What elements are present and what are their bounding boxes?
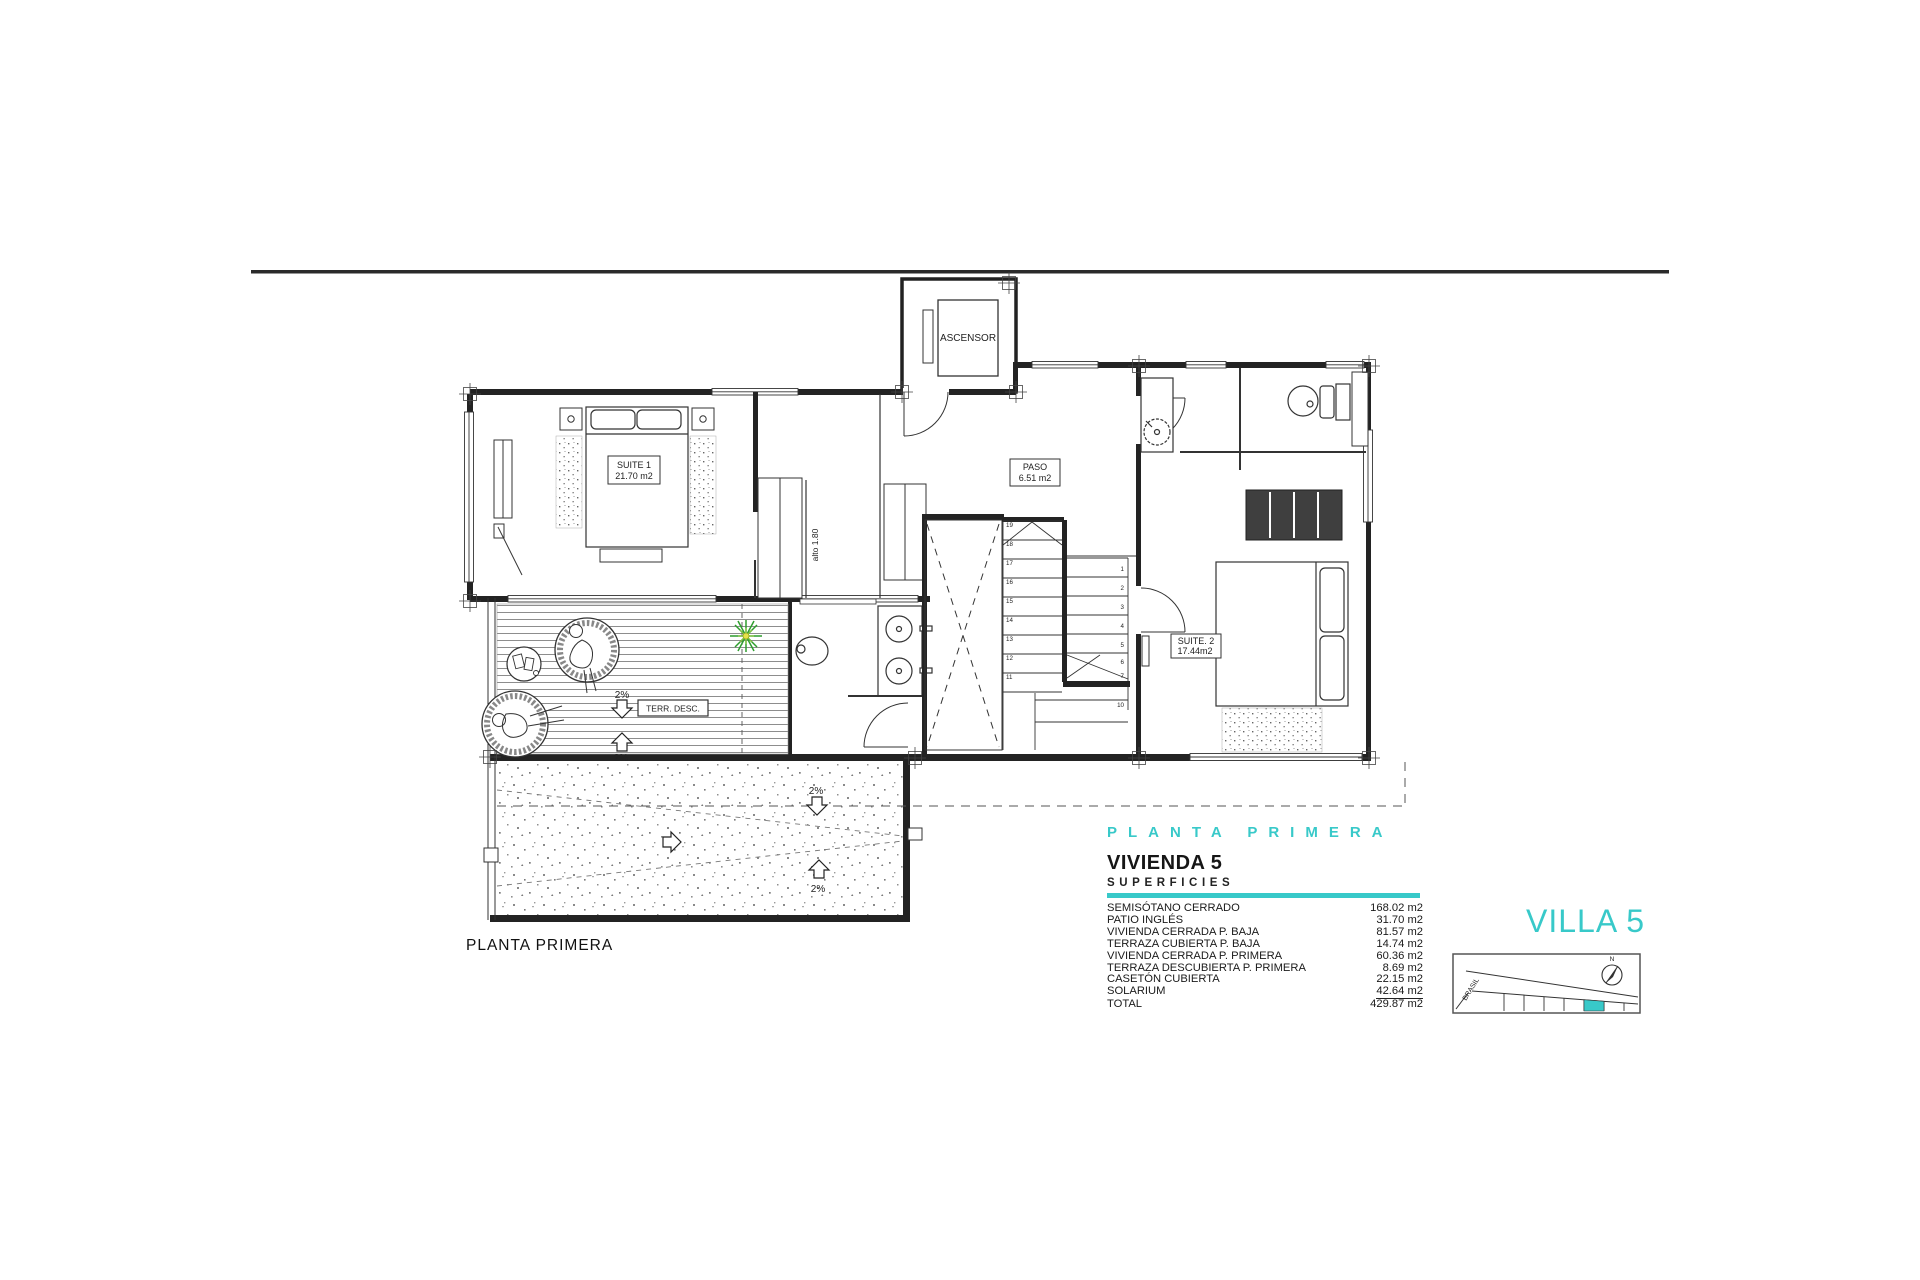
bath-cabinet bbox=[1352, 372, 1368, 446]
stair-void bbox=[922, 514, 1004, 757]
step-num: 11 bbox=[1006, 674, 1013, 681]
drain-fitting bbox=[908, 828, 922, 840]
suite1-wardrobe bbox=[494, 440, 522, 575]
north-label: N bbox=[1610, 956, 1615, 963]
step-num: 17 bbox=[1006, 560, 1013, 567]
step-num: 13 bbox=[1006, 636, 1013, 643]
slope-label: 2% bbox=[615, 690, 630, 701]
suite1-room: SUITE 1 21.70 m2 bbox=[494, 407, 716, 575]
suite2-radiator bbox=[1142, 636, 1149, 666]
alto-annotation: alto 1.80 bbox=[810, 528, 820, 561]
suite1-name: SUITE 1 bbox=[617, 460, 651, 470]
bathroom-middle bbox=[796, 599, 932, 696]
suite1-rug-left bbox=[556, 436, 582, 528]
suite2-label-box: SUITE. 2 17.44m2 bbox=[1171, 634, 1221, 658]
bathroom-right bbox=[1141, 368, 1368, 470]
suite2-bed bbox=[1216, 562, 1348, 706]
suite2-closet bbox=[1246, 490, 1342, 540]
step-num: 3 bbox=[1121, 604, 1125, 611]
wardrobe-b bbox=[884, 484, 926, 580]
table-row: VIVIENDA CERRADA P. BAJA81.57 m2 bbox=[1107, 927, 1423, 939]
step-num: 12 bbox=[1006, 655, 1013, 662]
table-row: TERRAZA CUBIERTA P. BAJA14.74 m2 bbox=[1107, 939, 1423, 951]
legend-divider-bar bbox=[1107, 893, 1420, 898]
terrace-deck: 2% 2% TERR. DESC. bbox=[482, 604, 788, 764]
step-num: 6 bbox=[1121, 659, 1125, 666]
table-row: VIVIENDA CERRADA P. PRIMERA60.36 m2 bbox=[1107, 951, 1423, 963]
table-row-total: TOTAL429.87 m2 bbox=[1107, 999, 1423, 1011]
row-label: TOTAL bbox=[1107, 999, 1142, 1011]
row-value: 429.87 m2 bbox=[1370, 999, 1423, 1011]
suite1-rug-right bbox=[690, 436, 716, 534]
step-num: 19 bbox=[1006, 522, 1013, 529]
row-label: VIVIENDA CERRADA P. BAJA bbox=[1107, 927, 1259, 939]
suite2-name: SUITE. 2 bbox=[1178, 636, 1215, 646]
sheet-border-line bbox=[251, 270, 1669, 274]
step-num: 14 bbox=[1006, 617, 1013, 624]
toilet-right bbox=[1288, 384, 1350, 420]
paso-name: PASO bbox=[1023, 462, 1047, 472]
drawing-sheet: ASCENSOR bbox=[0, 0, 1920, 1280]
terrace-label: TERR. DESC. bbox=[646, 704, 700, 714]
stairs: 19 18 17 16 15 14 13 12 11 1 2 3 4 5 6 7… bbox=[922, 514, 1136, 757]
stair-landing bbox=[1035, 693, 1128, 750]
villa-title: VILLA 5 bbox=[1526, 903, 1645, 940]
row-value: 14.74 m2 bbox=[1376, 939, 1423, 951]
row-label: VIVIENDA CERRADA P. PRIMERA bbox=[1107, 951, 1282, 963]
suite1-bench bbox=[600, 549, 662, 562]
row-value: 60.36 m2 bbox=[1376, 951, 1423, 963]
row-label: TERRAZA CUBIERTA P. BAJA bbox=[1107, 939, 1260, 951]
floor-plan: ASCENSOR bbox=[0, 0, 1920, 1280]
suite2-room: SUITE. 2 17.44m2 bbox=[1142, 490, 1348, 752]
terrace-table bbox=[507, 647, 541, 681]
step-num: 4 bbox=[1121, 623, 1125, 630]
legend-section-title: SUPERFICIES bbox=[1107, 877, 1234, 889]
suite2-rug bbox=[1222, 708, 1322, 752]
suite1-label-box: SUITE 1 21.70 m2 bbox=[608, 456, 660, 484]
toilet bbox=[796, 637, 828, 665]
plan-caption: PLANTA PRIMERA bbox=[466, 937, 613, 955]
elevator-label: ASCENSOR bbox=[940, 333, 996, 344]
dressing-corridor: alto 1.80 bbox=[753, 392, 926, 598]
paso-label-box: PASO 6.51 m2 bbox=[1010, 459, 1060, 486]
paso-area: 6.51 m2 bbox=[1019, 473, 1052, 483]
slope-label: 2% bbox=[809, 786, 824, 797]
step-num: 15 bbox=[1006, 598, 1013, 605]
round-sink bbox=[1144, 419, 1170, 445]
step-num: 10 bbox=[1117, 702, 1124, 709]
step-num: 16 bbox=[1006, 579, 1013, 586]
step-num: 5 bbox=[1121, 642, 1125, 649]
map-highlighted-plot bbox=[1584, 1000, 1604, 1011]
row-value: 81.57 m2 bbox=[1376, 927, 1423, 939]
step-num: 2 bbox=[1121, 585, 1125, 592]
step-num: 7 bbox=[1121, 673, 1125, 680]
site-map: BRASIL N bbox=[1452, 953, 1642, 1015]
wardrobe-a bbox=[758, 478, 802, 598]
suite2-area: 17.44m2 bbox=[1177, 646, 1212, 656]
elevator-shaft: ASCENSOR bbox=[902, 279, 1016, 392]
step-num: 1 bbox=[1121, 566, 1125, 573]
slope-label: 2% bbox=[811, 884, 826, 895]
terrace-label-box: TERR. DESC. bbox=[638, 700, 708, 716]
legend-unit-title: VIVIENDA 5 bbox=[1107, 852, 1222, 875]
legend-floor-title: PLANTA PRIMERA bbox=[1107, 824, 1394, 841]
suite1-area: 21.70 m2 bbox=[615, 471, 653, 481]
step-num: 18 bbox=[1006, 541, 1013, 548]
surface-table: SEMISÓTANO CERRADO168.02 m2 PATIO INGLÉS… bbox=[1107, 903, 1423, 1011]
